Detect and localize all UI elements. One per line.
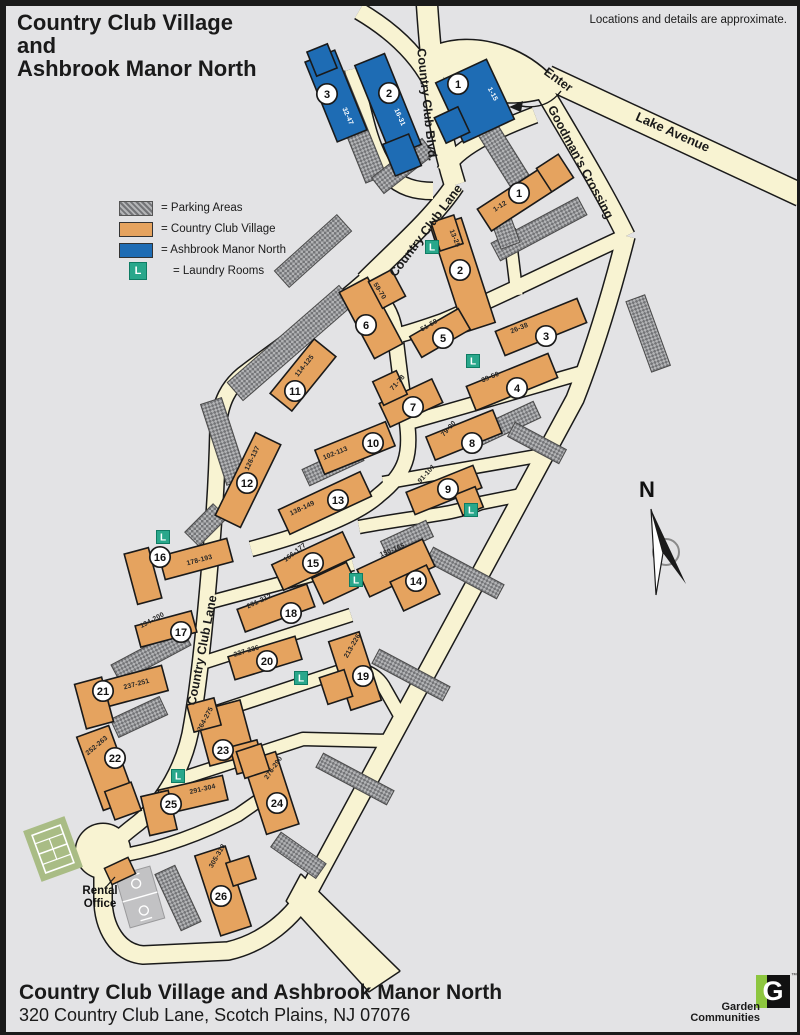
logo-g-letter: G <box>762 978 783 1005</box>
footer-title: Country Club Village and Ashbrook Manor … <box>19 981 502 1005</box>
building-number: 15 <box>307 558 319 570</box>
building-number: 7 <box>410 402 416 414</box>
building-number: 26 <box>215 891 227 903</box>
legend-label: = Ashbrook Manor North <box>161 244 286 256</box>
building-number: 18 <box>285 608 297 620</box>
laundry-letter: L <box>160 533 166 544</box>
building-number: 3 <box>324 89 330 101</box>
building-number: 6 <box>363 320 369 332</box>
laundry-room-badge: L <box>467 355 480 368</box>
building-number: 23 <box>217 745 229 757</box>
garden-communities-logo: G <box>756 975 790 1008</box>
building-number: 11 <box>289 386 301 398</box>
site-map: 1-15116-31232-4731-12113-25226-38339-504… <box>3 3 800 1035</box>
building-number: 4 <box>514 383 521 395</box>
site-map-page: 1-15116-31232-4731-12113-25226-38339-504… <box>0 0 800 1035</box>
rental-office-label: Office <box>84 898 117 910</box>
title-line-1: Country Club Village <box>17 11 257 34</box>
laundry-letter: L <box>298 674 304 685</box>
legend-label: = Parking Areas <box>161 202 243 214</box>
building-number: 13 <box>332 495 344 507</box>
legend-item-manor: = Ashbrook Manor North <box>119 242 286 258</box>
building-number: 1 <box>516 188 522 200</box>
building-number: 9 <box>445 484 451 496</box>
laundry-room-badge: L <box>295 672 308 685</box>
laundry-room-badge: L <box>157 531 170 544</box>
village-swatch-icon <box>119 222 153 237</box>
building-number: 22 <box>109 753 121 765</box>
title-line-2: and <box>17 34 257 57</box>
building-number: 25 <box>165 799 177 811</box>
building-number: 20 <box>261 656 273 668</box>
title-line-3: Ashbrook Manor North <box>17 57 257 80</box>
laundry-letter: L <box>470 357 476 368</box>
laundry-swatch-icon: L <box>129 262 147 280</box>
legend-item-laundry: L = Laundry Rooms <box>119 263 286 279</box>
laundry-letter: L <box>468 506 474 517</box>
building-number: 10 <box>367 438 379 450</box>
north-label: N <box>639 477 655 502</box>
logo-wordmark: Garden Communities <box>679 1002 760 1024</box>
building-number: 12 <box>241 478 253 490</box>
parking-swatch-icon <box>119 201 153 216</box>
disclaimer-text: Locations and details are approximate. <box>589 14 787 26</box>
building-number: 24 <box>271 798 284 810</box>
laundry-letter: L <box>175 772 181 783</box>
building-number: 19 <box>357 671 369 683</box>
legend-label: = Laundry Rooms <box>173 265 264 277</box>
laundry-letter: L <box>429 243 435 254</box>
building-number: 21 <box>97 686 109 698</box>
building-number: 16 <box>154 552 166 564</box>
laundry-room-badge: L <box>350 574 363 587</box>
legend: = Parking Areas = Country Club Village =… <box>119 200 286 284</box>
legend-label: = Country Club Village <box>161 223 276 235</box>
laundry-room-badge: L <box>465 504 478 517</box>
laundry-room-badge: L <box>172 770 185 783</box>
legend-item-parking: = Parking Areas <box>119 200 286 216</box>
building-number: 14 <box>410 576 423 588</box>
logo-word-communities: Communities <box>679 1013 760 1024</box>
building-number: 5 <box>440 333 446 345</box>
building-number: 1 <box>455 79 461 91</box>
logo-trademark: ™ <box>791 973 797 979</box>
laundry-room-badge: L <box>426 241 439 254</box>
building-number: 3 <box>543 331 549 343</box>
rental-office-label: Rental <box>82 885 117 897</box>
building-number: 2 <box>386 88 392 100</box>
page-title: Country Club Village and Ashbrook Manor … <box>17 11 257 80</box>
footer-address: 320 Country Club Lane, Scotch Plains, NJ… <box>19 1005 410 1026</box>
building-number: 17 <box>175 627 187 639</box>
laundry-letter: L <box>353 576 359 587</box>
manor-swatch-icon <box>119 243 153 258</box>
building-number: 2 <box>457 265 463 277</box>
building-number: 8 <box>469 438 475 450</box>
legend-item-village: = Country Club Village <box>119 221 286 237</box>
